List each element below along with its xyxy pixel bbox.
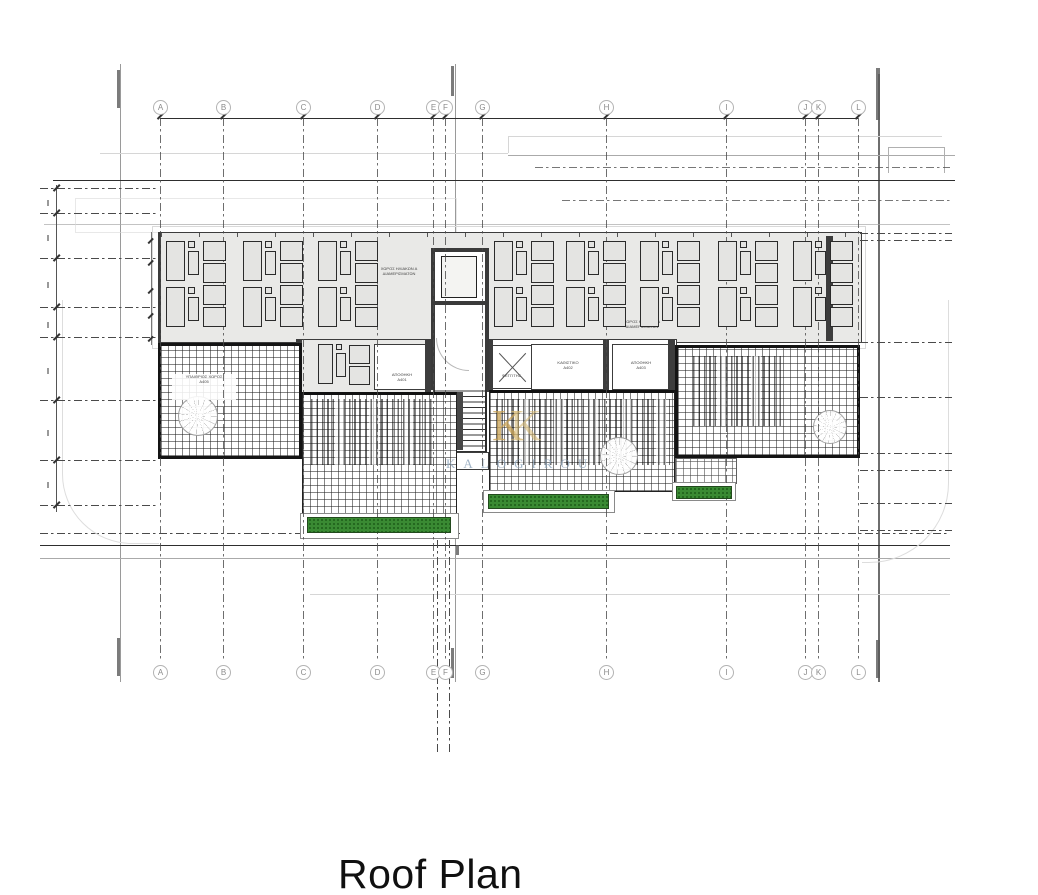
- site-line-lower-3: [310, 594, 950, 595]
- grid-bubble-K-bottom: K: [811, 665, 826, 680]
- street-label-top-left: [117, 70, 120, 108]
- solar-panel: [677, 241, 700, 261]
- room-a401-label: ΑΠΟΘΗΚΗΑ401: [376, 372, 428, 382]
- solar-panel: [340, 241, 347, 248]
- solar-panel-group: [494, 241, 554, 331]
- grid-column-line-F: [445, 118, 446, 660]
- solar-panel: [531, 307, 554, 327]
- solar-panel: [603, 285, 626, 305]
- grid-column-line-A: [160, 118, 161, 660]
- solar-panel: [336, 353, 346, 377]
- watermark-logo: KK: [492, 404, 542, 448]
- solar-panel: [203, 307, 226, 327]
- solar-panel: [166, 241, 185, 281]
- grid-column-line-D: [377, 118, 378, 660]
- solar-panel: [243, 241, 262, 281]
- street-label-bottom-left: [117, 638, 120, 676]
- drawing-title: Roof Plan: [338, 851, 523, 895]
- pergola-left-label-patch: ΥΠΑΙΘΡΙΟΣ ΧΩΡΟΣΑ405: [172, 374, 236, 400]
- grid-column-line-J: [805, 118, 806, 660]
- solar-panel: [318, 344, 333, 384]
- solar-panel: [188, 251, 199, 275]
- solar-panel: [203, 241, 226, 261]
- street-label-top-center: [451, 66, 454, 96]
- site-dash-line-right: [860, 342, 952, 343]
- solar-panel: [815, 287, 822, 294]
- solar-panel: [265, 241, 272, 248]
- spiral-stair-left: [178, 396, 218, 436]
- site-dash-line-right: [860, 503, 952, 504]
- solar-panel: [494, 241, 513, 281]
- pergola-beam-hatch: [693, 356, 785, 426]
- green-planter: [676, 486, 732, 499]
- dimension-number: [47, 368, 49, 374]
- solar-panel: [566, 287, 585, 327]
- site-dash-line-right: [860, 233, 952, 234]
- dimension-number: [47, 200, 49, 206]
- solar-panel-group: [243, 241, 303, 331]
- room-a403-label: ΑΠΟΘΗΚΗΑ403: [614, 360, 668, 370]
- solar-panel: [640, 287, 659, 327]
- dimension-number: [47, 322, 49, 328]
- solar-panel: [588, 251, 599, 275]
- grid-column-line-G: [482, 118, 483, 660]
- grid-bubble-D-top: D: [370, 100, 385, 115]
- watermark-text: KALOGIROU: [446, 456, 595, 472]
- solar-panel: [793, 241, 812, 281]
- solar-panel: [531, 241, 554, 261]
- solar-panel: [755, 307, 778, 327]
- solar-panel: [740, 297, 751, 321]
- top-dimension-line: [160, 118, 858, 119]
- solar-panel: [349, 366, 370, 385]
- solar-panel: [349, 345, 370, 364]
- solar-panel-group: [640, 241, 700, 331]
- grid-bubble-A-bottom: A: [153, 665, 168, 680]
- dimension-number: [47, 282, 49, 288]
- solar-panel: [603, 241, 626, 261]
- pergola-left: [158, 343, 302, 459]
- solar-panel: [280, 263, 303, 283]
- site-dash-line-left: [40, 460, 158, 461]
- grid-bubble-H-top: H: [599, 100, 614, 115]
- site-line-lower-2: [40, 558, 950, 559]
- solar-panel: [662, 241, 669, 248]
- solar-panel: [280, 307, 303, 327]
- solar-panel: [494, 287, 513, 327]
- storage-room-a401: [374, 344, 432, 390]
- property-curve-right: [862, 300, 949, 563]
- solar-panel: [188, 287, 195, 294]
- grid-bubble-G-top: G: [475, 100, 490, 115]
- site-line-light-right: [508, 136, 942, 137]
- solar-panel-group: [793, 241, 853, 331]
- green-planter: [488, 494, 609, 509]
- grid-column-line-B: [223, 118, 224, 660]
- solar-panel: [203, 285, 226, 305]
- site-dash-line-left: [40, 213, 158, 214]
- solar-panel-group: [166, 241, 226, 331]
- skylight-box: [492, 345, 533, 389]
- grid-bubble-C-bottom: C: [296, 665, 311, 680]
- grid-bubble-F-bottom: F: [438, 665, 453, 680]
- solar-panel: [280, 241, 303, 261]
- solar-panel: [740, 241, 747, 248]
- solar-panel: [815, 241, 822, 248]
- site-line-main-upper: [53, 180, 955, 181]
- grid-bubble-K-top: K: [811, 100, 826, 115]
- solar-panel: [815, 251, 826, 275]
- solar-panel: [677, 263, 700, 283]
- neighbor-building-outline: [888, 147, 945, 173]
- solar-panel: [340, 287, 347, 294]
- solar-panel: [662, 251, 673, 275]
- pergola-beam-hatch: [311, 399, 433, 465]
- solar-panel: [280, 285, 303, 305]
- site-line-main-lower: [40, 545, 950, 546]
- grid-bubble-I-bottom: I: [719, 665, 734, 680]
- grid-column-line-H: [606, 118, 607, 660]
- terrace-dash-line-1: [535, 167, 950, 168]
- solar-panel: [830, 263, 853, 283]
- solar-panel: [355, 285, 378, 305]
- solar-panel: [740, 251, 751, 275]
- terrace-dash-line-2: [562, 200, 950, 201]
- roof-plan-canvas: ΥΠΑΙΘΡΙΟΣ ΧΩΡΟΣΑ405 ΧΩΡΟΣ ΗΛΙΑΚΩΝ ΑΔΙΑΜΕ…: [0, 0, 1038, 895]
- grid-bubble-G-bottom: G: [475, 665, 490, 680]
- solar-panel: [340, 297, 351, 321]
- solar-panel: [166, 287, 185, 327]
- solar-panel: [755, 241, 778, 261]
- solar-panel: [677, 307, 700, 327]
- grid-bubble-I-top: I: [719, 100, 734, 115]
- grid-bubble-L-bottom: L: [851, 665, 866, 680]
- grid-bubble-F-top: F: [438, 100, 453, 115]
- solar-panel-group: [566, 241, 626, 331]
- site-dash-line-right: [860, 470, 952, 471]
- solar-panel: [566, 241, 585, 281]
- solar-panel: [815, 297, 826, 321]
- solar-panel: [830, 241, 853, 261]
- elevator-car: [441, 256, 477, 298]
- grid-column-line-C: [303, 118, 304, 660]
- left-dimension-line: [56, 185, 57, 512]
- solar-panel: [531, 263, 554, 283]
- solar-panel: [718, 241, 737, 281]
- solar-panel: [588, 297, 599, 321]
- solar-panel: [265, 287, 272, 294]
- site-dash-line-right: [860, 240, 952, 241]
- room-a402-label: ΚΑΘΙΣΤΙΚΟΑ402: [534, 360, 602, 370]
- solar-panel: [640, 241, 659, 281]
- site-dash-line-right: [860, 453, 952, 454]
- skylight-label: ΦΕΓΓΙΤΗΣ: [493, 373, 530, 378]
- site-line-light-left: [100, 153, 508, 154]
- solar-panel: [588, 241, 595, 248]
- grid-column-line-E: [433, 118, 434, 660]
- solar-panel-group: [318, 241, 378, 331]
- dimension-number: [47, 482, 49, 488]
- site-dash-line-right: [860, 397, 952, 398]
- pergola-right-extension: [675, 458, 737, 484]
- solar-panel-group: [718, 241, 778, 331]
- solar-panel: [603, 307, 626, 327]
- site-dash-line-left: [40, 258, 158, 259]
- dimension-number: [47, 430, 49, 436]
- solar-panel: [340, 251, 351, 275]
- solar-panel: [588, 287, 595, 294]
- site-dash-line-left: [40, 400, 158, 401]
- grid-bubble-B-bottom: B: [216, 665, 231, 680]
- solar-panel: [188, 297, 199, 321]
- solar-panel: [830, 307, 853, 327]
- solar-panel: [662, 287, 669, 294]
- solar-panel: [355, 241, 378, 261]
- solar-panel: [243, 287, 262, 327]
- site-dash-line-left: [40, 337, 158, 338]
- solar-panel: [318, 287, 337, 327]
- solar-panel: [203, 263, 226, 283]
- parapet-ticks: [161, 233, 861, 237]
- solar-panel: [677, 285, 700, 305]
- solar-panel: [740, 287, 747, 294]
- grid-bubble-L-top: L: [851, 100, 866, 115]
- solar-panel: [516, 251, 527, 275]
- site-dash-line-right: [860, 530, 952, 531]
- solar-panel: [318, 241, 337, 281]
- grid-bubble-C-top: C: [296, 100, 311, 115]
- grid-bubble-A-top: A: [153, 100, 168, 115]
- site-dash-line-left: [40, 505, 158, 506]
- solar-panel: [355, 307, 378, 327]
- solar-area-label-left: ΧΩΡΟΣ ΗΛΙΑΚΩΝ ΑΔΙΑΜΕΡΙΣΜΑΤΩΝ: [372, 266, 426, 276]
- site-line-light-jog: [508, 136, 509, 153]
- grid-bubble-H-bottom: H: [599, 665, 614, 680]
- wall-segment: [668, 339, 675, 392]
- solar-panel: [718, 287, 737, 327]
- small-label-below-plan: [456, 545, 459, 555]
- solar-panel: [516, 297, 527, 321]
- dimension-number: [47, 235, 49, 241]
- green-planter: [307, 517, 451, 533]
- column-line-extension-2: [449, 540, 450, 755]
- solar-panel: [830, 285, 853, 305]
- column-line-extension-1: [437, 540, 438, 755]
- solar-panel: [265, 297, 276, 321]
- solar-panel: [516, 287, 523, 294]
- solar-panel: [516, 241, 523, 248]
- solar-panel: [531, 285, 554, 305]
- site-dash-line-left: [40, 307, 158, 308]
- solar-panel: [755, 263, 778, 283]
- grid-column-line-K: [818, 118, 819, 660]
- solar-panel: [355, 263, 378, 283]
- solar-panel: [793, 287, 812, 327]
- site-dash-line-left: [40, 188, 158, 189]
- pergola-left-label: ΥΠΑΙΘΡΙΟΣ ΧΩΡΟΣΑ405: [172, 374, 236, 384]
- solar-panel: [603, 263, 626, 283]
- street-label-bottom-right: [876, 640, 880, 678]
- grid-column-line-L: [858, 118, 859, 660]
- grid-bubble-D-bottom: D: [370, 665, 385, 680]
- solar-panel: [755, 285, 778, 305]
- solar-panel: [662, 297, 673, 321]
- solar-panel: [265, 251, 276, 275]
- grid-bubble-B-top: B: [216, 100, 231, 115]
- solar-panel: [336, 344, 342, 350]
- grid-column-line-I: [726, 118, 727, 660]
- solar-panel: [188, 241, 195, 248]
- street-label-top-right: [876, 68, 880, 120]
